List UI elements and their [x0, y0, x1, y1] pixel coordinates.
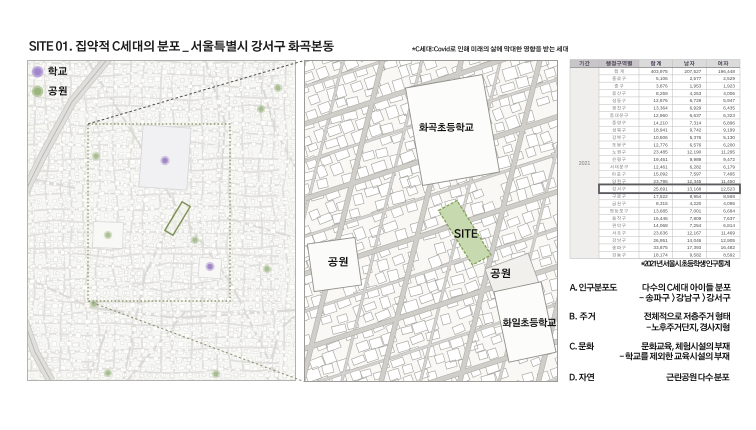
- svg-text:6,282: 6,282: [690, 164, 702, 169]
- svg-text:26,951: 26,951: [653, 238, 668, 243]
- svg-text:2,529: 2,529: [723, 76, 735, 81]
- svg-text:6,576: 6,576: [690, 142, 702, 147]
- svg-text:403,975: 403,975: [651, 69, 668, 74]
- svg-text:6,179: 6,179: [723, 164, 735, 169]
- svg-text:25,691: 25,691: [653, 186, 668, 191]
- svg-text:12,523: 12,523: [721, 186, 736, 191]
- svg-text:6,637: 6,637: [690, 113, 702, 118]
- svg-text:23,795: 23,795: [653, 179, 668, 184]
- svg-text:6,896: 6,896: [723, 120, 735, 125]
- svg-text:23,636: 23,636: [653, 231, 668, 236]
- svg-text:19,461: 19,461: [653, 157, 668, 162]
- svg-text:5,947: 5,947: [723, 98, 735, 103]
- svg-text:9,742: 9,742: [690, 128, 702, 133]
- svg-text:8,592: 8,592: [723, 253, 735, 258]
- svg-text:6,323: 6,323: [723, 113, 735, 118]
- svg-text:6,929: 6,929: [690, 106, 702, 111]
- svg-text:18,174: 18,174: [653, 253, 668, 258]
- svg-text:11,450: 11,450: [721, 179, 735, 184]
- svg-text:12,345: 12,345: [687, 179, 702, 184]
- svg-text:4,095: 4,095: [723, 201, 735, 206]
- svg-text:17,522: 17,522: [653, 194, 668, 199]
- svg-text:11,469: 11,469: [721, 231, 735, 236]
- svg-text:14,068: 14,068: [653, 223, 668, 228]
- svg-text:12,190: 12,190: [687, 150, 702, 155]
- svg-text:7,495: 7,495: [723, 172, 735, 177]
- svg-text:14,210: 14,210: [653, 120, 668, 125]
- svg-text:6,435: 6,435: [723, 106, 735, 111]
- svg-text:6,814: 6,814: [723, 223, 735, 228]
- svg-text:10,506: 10,506: [653, 135, 668, 140]
- svg-text:12,905: 12,905: [721, 238, 736, 243]
- svg-text:207,527: 207,527: [684, 69, 701, 74]
- svg-text:9,472: 9,472: [723, 157, 735, 162]
- svg-text:13,364: 13,364: [653, 106, 668, 111]
- svg-text:7,637: 7,637: [723, 216, 735, 221]
- svg-text:4,253: 4,253: [690, 91, 702, 96]
- svg-text:12,167: 12,167: [687, 231, 702, 236]
- svg-text:13,685: 13,685: [653, 208, 668, 213]
- svg-text:12,960: 12,960: [653, 113, 668, 118]
- svg-text:5,130: 5,130: [723, 135, 735, 140]
- svg-text:14,046: 14,046: [687, 238, 702, 243]
- svg-text:18,941: 18,941: [653, 128, 668, 133]
- svg-text:12,776: 12,776: [653, 142, 668, 147]
- svg-text:17,393: 17,393: [687, 245, 702, 250]
- svg-text:5,106: 5,106: [656, 76, 668, 81]
- svg-text:8,954: 8,954: [690, 194, 702, 199]
- svg-text:7,597: 7,597: [690, 172, 702, 177]
- svg-text:1,953: 1,953: [690, 84, 702, 89]
- svg-text:11,295: 11,295: [721, 150, 735, 155]
- svg-text:196,448: 196,448: [718, 69, 735, 74]
- svg-text:5,376: 5,376: [690, 135, 702, 140]
- svg-text:8,568: 8,568: [723, 194, 735, 199]
- svg-text:6,684: 6,684: [723, 208, 735, 213]
- svg-text:4,006: 4,006: [723, 91, 735, 96]
- svg-text:9,989: 9,989: [690, 157, 702, 162]
- svg-text:9,199: 9,199: [723, 128, 735, 133]
- svg-text:33,875: 33,875: [653, 245, 668, 250]
- svg-text:2,577: 2,577: [690, 76, 702, 81]
- svg-text:1,923: 1,923: [723, 84, 735, 89]
- svg-text:4,220: 4,220: [690, 201, 702, 206]
- svg-text:15,446: 15,446: [653, 216, 668, 221]
- svg-text:3,876: 3,876: [656, 84, 668, 89]
- svg-text:7,314: 7,314: [690, 120, 702, 125]
- svg-text:6,200: 6,200: [723, 142, 735, 147]
- svg-text:16,482: 16,482: [721, 245, 736, 250]
- svg-text:15,092: 15,092: [653, 172, 668, 177]
- svg-text:2021: 2021: [579, 161, 591, 167]
- svg-text:23,485: 23,485: [653, 150, 668, 155]
- svg-text:8,259: 8,259: [656, 91, 668, 96]
- svg-text:7,254: 7,254: [690, 223, 702, 228]
- svg-text:7,001: 7,001: [690, 208, 702, 213]
- svg-text:12,676: 12,676: [653, 98, 668, 103]
- svg-text:7,809: 7,809: [690, 216, 702, 221]
- svg-text:8,315: 8,315: [656, 201, 668, 206]
- svg-text:13,168: 13,168: [687, 186, 702, 191]
- svg-text:9,582: 9,582: [690, 253, 702, 258]
- svg-text:6,729: 6,729: [690, 98, 702, 103]
- svg-text:12,461: 12,461: [653, 164, 668, 169]
